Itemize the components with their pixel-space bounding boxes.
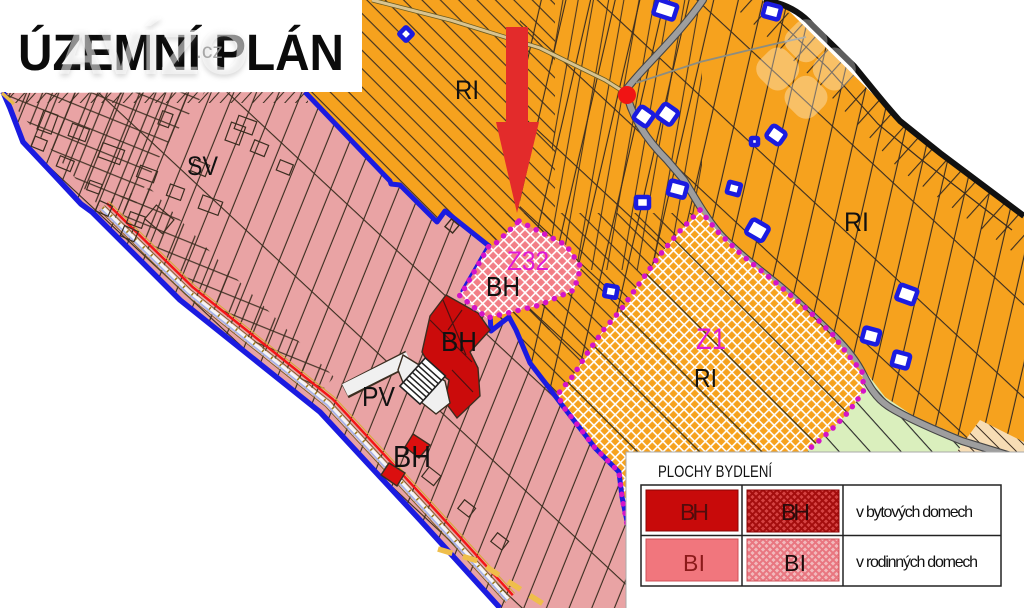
svg-text:v rodinných domech: v rodinných domech xyxy=(856,554,978,571)
svg-text:BI: BI xyxy=(683,550,705,576)
svg-text:BH: BH xyxy=(441,326,477,357)
svg-text:Z1: Z1 xyxy=(696,323,726,356)
svg-text:v bytových domech: v bytových domech xyxy=(856,504,973,521)
svg-text:BI: BI xyxy=(784,550,806,576)
svg-text:PV: PV xyxy=(362,381,395,412)
svg-text:PLOCHY BYDLENÍ: PLOCHY BYDLENÍ xyxy=(658,462,772,481)
svg-text:BH: BH xyxy=(680,499,709,525)
svg-text:RI: RI xyxy=(455,75,479,105)
svg-text:SV: SV xyxy=(187,151,218,181)
svg-text:Z32: Z32 xyxy=(507,246,549,276)
svg-text:RI: RI xyxy=(844,207,869,237)
svg-text:.cz: .cz xyxy=(196,40,223,63)
svg-text:BH: BH xyxy=(393,439,431,474)
svg-text:BH: BH xyxy=(781,499,810,525)
svg-text:RI: RI xyxy=(694,363,717,393)
